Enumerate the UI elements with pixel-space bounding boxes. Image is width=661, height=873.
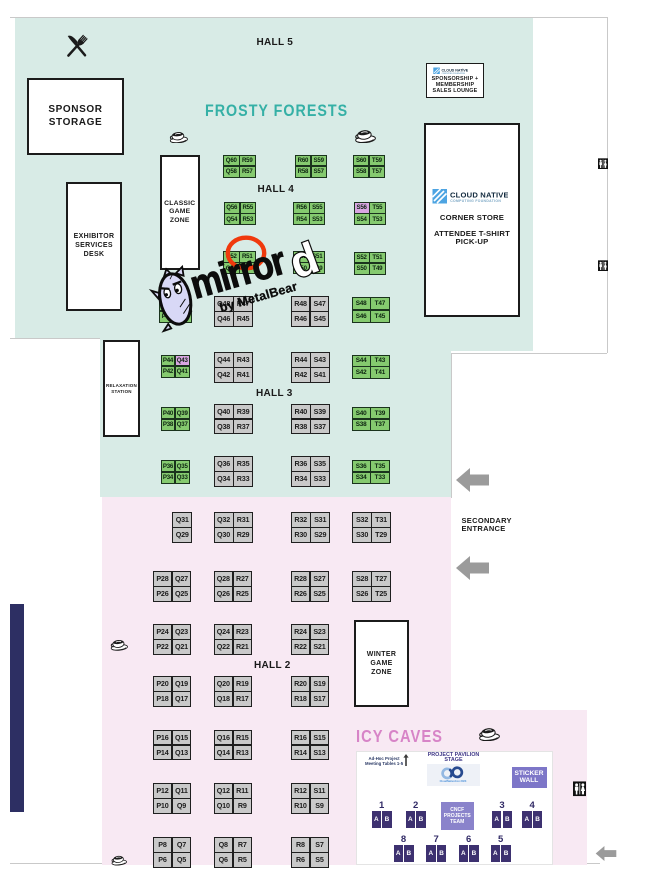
- svg-text:COMPUTING FOUNDATION: COMPUTING FOUNDATION: [442, 72, 466, 75]
- svg-text:CLOUD NATİVE: CLOUD NATİVE: [442, 68, 469, 72]
- svg-text:COMPUTING FOUNDATION: COMPUTING FOUNDATION: [450, 199, 501, 203]
- svg-text:CloudNativeCon 2023: CloudNativeCon 2023: [440, 779, 467, 783]
